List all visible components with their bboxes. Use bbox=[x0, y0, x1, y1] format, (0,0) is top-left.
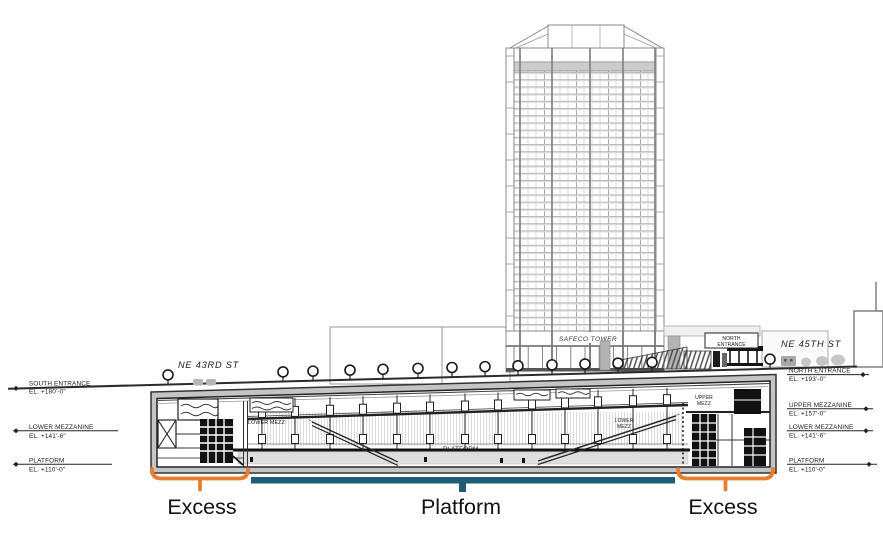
north-entrance-callout: NORTH ENTRANCE bbox=[705, 333, 758, 348]
drawing-canvas: SAFECO TOWER NORTH ENTRANCE bbox=[0, 0, 883, 533]
tree-icon bbox=[613, 358, 623, 368]
tree-icon bbox=[308, 366, 318, 376]
north-entrance-callout-line1: NORTH bbox=[722, 336, 740, 342]
north-entrance-callout-line2: ENTRANCE bbox=[717, 342, 746, 348]
elevation-label-platform-north: PLATFORM EL. +110'-0" bbox=[787, 457, 877, 473]
svg-text:NORTH ENTRANCE: NORTH ENTRANCE bbox=[789, 368, 851, 375]
south-stair-block bbox=[200, 419, 233, 463]
excess-label-left: Excess bbox=[167, 495, 236, 519]
elevation-labels-left: SOUTH ENTRANCE EL. +180'-0" LOWER MEZZAN… bbox=[13, 381, 118, 474]
car-silhouette bbox=[781, 356, 796, 366]
upper-mezz-label-line2: MEZZ bbox=[697, 401, 711, 407]
svg-text:EL. +110'-0": EL. +110'-0" bbox=[789, 466, 825, 473]
svg-text:PLATFORM: PLATFORM bbox=[29, 457, 65, 464]
svg-text:UPPER MEZZANINE: UPPER MEZZANINE bbox=[789, 402, 852, 409]
elevation-label-upper-mezzanine: UPPER MEZZANINE EL. +157'-0" bbox=[787, 402, 873, 418]
tower-roof-band bbox=[506, 62, 664, 71]
entrance-slab-south bbox=[600, 341, 610, 370]
background-building-right bbox=[854, 282, 883, 367]
platform-label: PLATFORM bbox=[443, 446, 479, 453]
elevation-label-lower-mezzanine: LOWER MEZZANINE EL. +141'-6" bbox=[13, 424, 118, 440]
station-cross-section: LOWER MEZZ LOWER MEZZ UPPER MEZZ PLATFOR… bbox=[151, 375, 776, 474]
svg-text:LOWER MEZZANINE: LOWER MEZZANINE bbox=[29, 424, 93, 431]
station-section-drawing: SAFECO TOWER NORTH ENTRANCE bbox=[0, 0, 883, 533]
svg-text:EL. +157'-0": EL. +157'-0" bbox=[789, 410, 826, 417]
svg-text:EL. +141'-6": EL. +141'-6" bbox=[29, 433, 66, 440]
elevation-label-north-entrance: NORTH ENTRANCE EL. +193'-0" bbox=[787, 368, 869, 384]
excess-label-right: Excess bbox=[688, 495, 757, 519]
tower-facade bbox=[514, 71, 656, 331]
lower-mezz-label-right-line2: MEZZ bbox=[617, 424, 631, 430]
street-label-ne-43rd: NE 43RD ST bbox=[178, 360, 240, 370]
svg-text:PLATFORM: PLATFORM bbox=[789, 457, 825, 464]
tree-icon bbox=[163, 370, 173, 380]
svg-text:EL. +141'-6": EL. +141'-6" bbox=[789, 432, 826, 439]
svg-text:EL. +180'-0": EL. +180'-0" bbox=[29, 389, 66, 396]
tower-penthouse bbox=[548, 25, 624, 48]
entrance-canopy bbox=[727, 346, 763, 366]
tree-icon bbox=[278, 367, 288, 377]
svg-text:EL. +110'-0": EL. +110'-0" bbox=[29, 466, 65, 473]
extent-annotations: Excess Platform Excess bbox=[152, 469, 773, 519]
svg-text:SOUTH ENTRANCE: SOUTH ENTRANCE bbox=[29, 381, 90, 388]
platform-extent-bar bbox=[251, 477, 675, 492]
tree-icon bbox=[378, 364, 388, 374]
tree-icon bbox=[513, 361, 523, 371]
entrance-ramp-north bbox=[684, 351, 711, 369]
tree-icon bbox=[480, 362, 490, 372]
platform-extent-label: Platform bbox=[421, 495, 501, 519]
tree-icon bbox=[413, 363, 423, 373]
tree-icon bbox=[580, 359, 590, 369]
elevation-label-lower-mezzanine-north: LOWER MEZZANINE EL. +141'-6" bbox=[787, 424, 873, 440]
tree-icon bbox=[547, 360, 557, 370]
tree-icon bbox=[765, 354, 775, 364]
svg-text:LOWER MEZZANINE: LOWER MEZZANINE bbox=[789, 424, 853, 431]
north-stair-block bbox=[692, 414, 716, 466]
street-label-ne-45th: NE 45TH ST bbox=[781, 339, 842, 349]
lower-mezz-label-left: LOWER MEZZ bbox=[248, 420, 286, 426]
tree-icon bbox=[647, 357, 657, 367]
safeco-tower: SAFECO TOWER bbox=[506, 25, 664, 372]
tree-icon bbox=[447, 362, 457, 372]
svg-text:EL. +193'-0": EL. +193'-0" bbox=[789, 376, 826, 383]
tree-icon bbox=[345, 365, 355, 375]
elevation-label-platform-south: PLATFORM EL. +110'-0" bbox=[13, 457, 112, 473]
elevation-labels-right: NORTH ENTRANCE EL. +193'-0" UPPER MEZZAN… bbox=[787, 368, 877, 474]
